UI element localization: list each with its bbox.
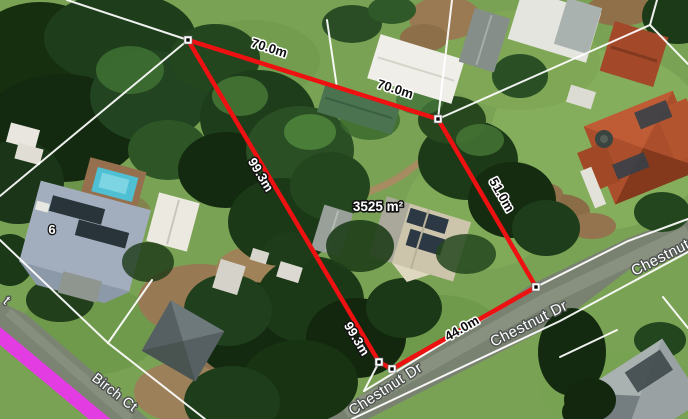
area-label: 3525 m²: [353, 199, 404, 214]
vertex-handle[interactable]: [434, 115, 442, 123]
vertex-handle[interactable]: [184, 36, 192, 44]
vertex-handle[interactable]: [375, 358, 383, 366]
map-viewport[interactable]: Chestnut Dr Chestnut Dr Chestnut Dr Birc…: [0, 0, 688, 419]
house-number-label: 6: [48, 222, 55, 237]
satellite-map-canvas[interactable]: Chestnut Dr Chestnut Dr Chestnut Dr Birc…: [0, 0, 688, 419]
vertex-handle[interactable]: [532, 283, 540, 291]
vertex-handle[interactable]: [388, 365, 396, 373]
